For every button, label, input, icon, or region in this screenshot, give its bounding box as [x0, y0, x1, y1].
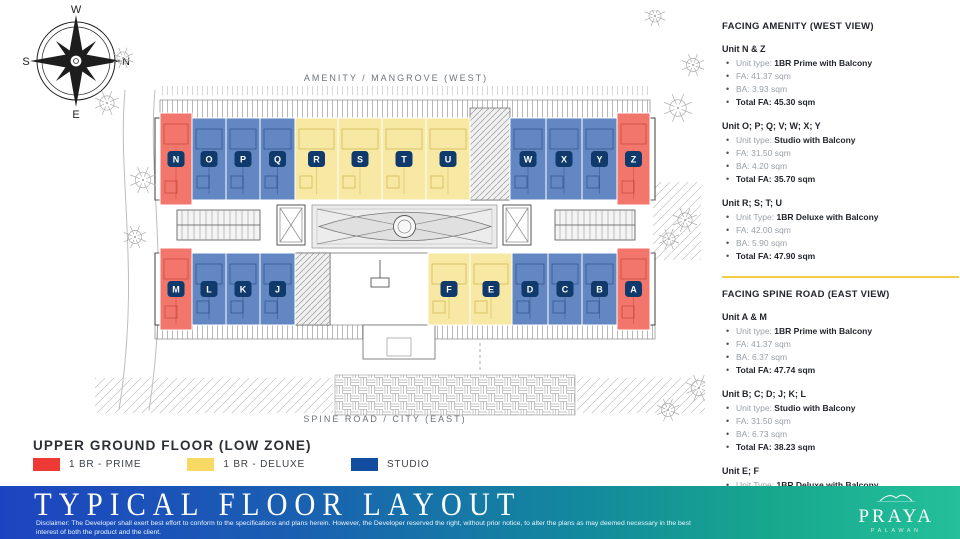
unit-spec-list: Unit type: Studio with BalconyFA: 31.50 …	[722, 134, 959, 186]
brand-name: PRAYA	[858, 507, 934, 526]
svg-text:W: W	[524, 155, 533, 165]
svg-text:E: E	[488, 285, 494, 295]
tree-icon	[130, 167, 156, 193]
svg-text:D: D	[527, 285, 534, 295]
service-core-top	[470, 108, 510, 200]
unit-badge-M: M	[168, 281, 185, 297]
tree-icon	[645, 10, 665, 26]
svg-text:O: O	[205, 155, 212, 165]
entry-plaza-paving	[335, 375, 575, 415]
stair-right	[555, 210, 635, 240]
spec-row: Unit type: Studio with Balcony	[722, 402, 959, 415]
spec-row: Unit type: Studio with Balcony	[722, 134, 959, 147]
legend-swatch	[187, 458, 214, 471]
svg-text:X: X	[561, 155, 567, 165]
svg-text:R: R	[313, 155, 320, 165]
unit-badge-T: T	[396, 151, 413, 167]
tree-icon	[95, 91, 119, 115]
legend-label: 1 BR - DELUXE	[223, 459, 305, 470]
legend-label: STUDIO	[387, 459, 430, 470]
svg-text:B: B	[596, 285, 603, 295]
canopy-strip	[160, 86, 650, 95]
unit-group-title: Unit B; C; D; J; K; L	[722, 389, 959, 399]
unit-group-title: Unit E; F	[722, 466, 959, 476]
unit-badge-P: P	[235, 151, 252, 167]
floor-zone-title: UPPER GROUND FLOOR (LOW ZONE)	[33, 438, 312, 453]
svg-text:P: P	[240, 155, 246, 165]
brand-logo: PRAYA PALAWAN	[858, 490, 934, 535]
unit-badge-S: S	[352, 151, 369, 167]
spec-row: BA: 6.37 sqm	[722, 351, 959, 364]
unit-badge-O: O	[201, 151, 218, 167]
floor-plan: NOPQRSTUWXYZMLKJFEDCBA	[95, 10, 705, 425]
unit-badge-B: B	[591, 281, 608, 297]
courtyard-garden	[312, 205, 497, 248]
spec-row: BA: 4.20 sqm	[722, 160, 959, 173]
legend-swatch	[351, 458, 378, 471]
unit-spec-list: Unit type: Studio with BalconyFA: 31.50 …	[722, 402, 959, 454]
unit-badge-J: J	[269, 281, 286, 297]
spec-row: FA: 31.50 sqm	[722, 147, 959, 160]
floor-layout-slide: W N E S AMENITY / MANGROVE (WEST) SPINE …	[0, 0, 960, 539]
svg-text:L: L	[206, 285, 212, 295]
unit-badge-U: U	[440, 151, 457, 167]
legend-item: STUDIO	[351, 458, 430, 471]
compass-east: E	[72, 109, 79, 120]
svg-text:T: T	[401, 155, 407, 165]
driveway-hatch	[653, 182, 701, 260]
spec-row: BA: 5.90 sqm	[722, 237, 959, 250]
section-divider	[722, 276, 959, 278]
svg-text:F: F	[446, 285, 452, 295]
unit-spec-list: Unit type: 1BR Prime with BalconyFA: 41.…	[722, 57, 959, 109]
unit-spec-list: Unit type: 1BR Prime with BalconyFA: 41.…	[722, 325, 959, 377]
tree-icon	[664, 94, 692, 122]
unit-badge-Q: Q	[269, 151, 286, 167]
unit-badge-K: K	[235, 281, 252, 297]
unit-group-title: Unit O; P; Q; V; W; X; Y	[722, 121, 959, 131]
compass-west: W	[71, 4, 82, 16]
info-panel: FACING AMENITY (WEST VIEW)Unit N & ZUnit…	[722, 10, 959, 531]
unit-badge-W: W	[520, 151, 537, 167]
tree-icon	[682, 54, 704, 76]
unit-badge-Y: Y	[591, 151, 608, 167]
spec-row: Unit Type: 1BR Deluxe with Balcony	[722, 211, 959, 224]
unit-badge-R: R	[308, 151, 325, 167]
units-south-wing	[160, 248, 650, 330]
elevator-right	[503, 205, 531, 245]
stair-left	[177, 210, 260, 240]
spec-row: Unit type: 1BR Prime with Balcony	[722, 325, 959, 338]
brand-subtitle: PALAWAN	[858, 529, 934, 535]
compass-south: S	[22, 56, 29, 68]
legend-label: 1 BR - PRIME	[69, 459, 141, 470]
unit-badge-Z: Z	[625, 151, 642, 167]
legend-item: 1 BR - PRIME	[33, 458, 141, 471]
svg-text:K: K	[240, 285, 247, 295]
svg-text:M: M	[172, 285, 180, 295]
svg-text:J: J	[275, 285, 280, 295]
page-title: TYPICAL FLOOR LAYOUT	[34, 487, 521, 524]
unit-group-title: Unit R; S; T; U	[722, 198, 959, 208]
ground-hatch-left	[95, 378, 333, 413]
ground-hatch-right	[577, 378, 705, 413]
svg-text:N: N	[173, 155, 180, 165]
unit-badge-A: A	[625, 281, 642, 297]
svg-text:A: A	[630, 285, 637, 295]
unit-badge-L: L	[201, 281, 218, 297]
legend: 1 BR - PRIME1 BR - DELUXESTUDIO	[33, 458, 430, 471]
svg-text:C: C	[562, 285, 569, 295]
legend-item: 1 BR - DELUXE	[187, 458, 305, 471]
svg-text:Y: Y	[596, 155, 602, 165]
unit-spec-list: Unit Type: 1BR Deluxe with BalconyFA: 42…	[722, 211, 959, 263]
svg-text:Z: Z	[631, 155, 637, 165]
spec-row: FA: 31.50 sqm	[722, 415, 959, 428]
spec-row: Total FA: 47.90 sqm	[722, 250, 959, 263]
unit-badge-X: X	[556, 151, 573, 167]
spec-row: FA: 42.00 sqm	[722, 224, 959, 237]
service-core-bottom	[295, 253, 330, 325]
unit-badge-D: D	[522, 281, 539, 297]
legend-swatch	[33, 458, 60, 471]
spec-row: Total FA: 47.74 sqm	[722, 364, 959, 377]
spec-row: Total FA: 35.70 sqm	[722, 173, 959, 186]
svg-text:Q: Q	[274, 155, 281, 165]
unit-badge-C: C	[557, 281, 574, 297]
unit-group-title: Unit N & Z	[722, 44, 959, 54]
unit-badge-N: N	[168, 151, 185, 167]
unit-badge-E: E	[483, 281, 500, 297]
spec-row: Total FA: 38.23 sqm	[722, 441, 959, 454]
tree-icon	[113, 48, 133, 68]
spec-row: FA: 41.37 sqm	[722, 338, 959, 351]
section-heading: FACING SPINE ROAD (EAST VIEW)	[722, 289, 959, 300]
svg-text:S: S	[357, 155, 363, 165]
unit-group-title: Unit A & M	[722, 312, 959, 322]
svg-text:U: U	[445, 155, 452, 165]
unit-badge-F: F	[441, 281, 458, 297]
elevator-left	[277, 205, 305, 245]
central-corridor	[177, 205, 635, 248]
spec-row: BA: 6.73 sqm	[722, 428, 959, 441]
spec-row: Total FA: 45.30 sqm	[722, 96, 959, 109]
section-heading: FACING AMENITY (WEST VIEW)	[722, 21, 959, 32]
spec-row: Unit type: 1BR Prime with Balcony	[722, 57, 959, 70]
spec-row: FA: 41.37 sqm	[722, 70, 959, 83]
footer-bar: TYPICAL FLOOR LAYOUT Disclaimer: The Dev…	[0, 486, 960, 539]
disclaimer-text: Disclaimer: The Developer shall exert be…	[36, 520, 696, 537]
spec-row: BA: 3.93 sqm	[722, 83, 959, 96]
balcony-strip-top	[160, 100, 650, 118]
mountain-icon	[875, 490, 917, 502]
